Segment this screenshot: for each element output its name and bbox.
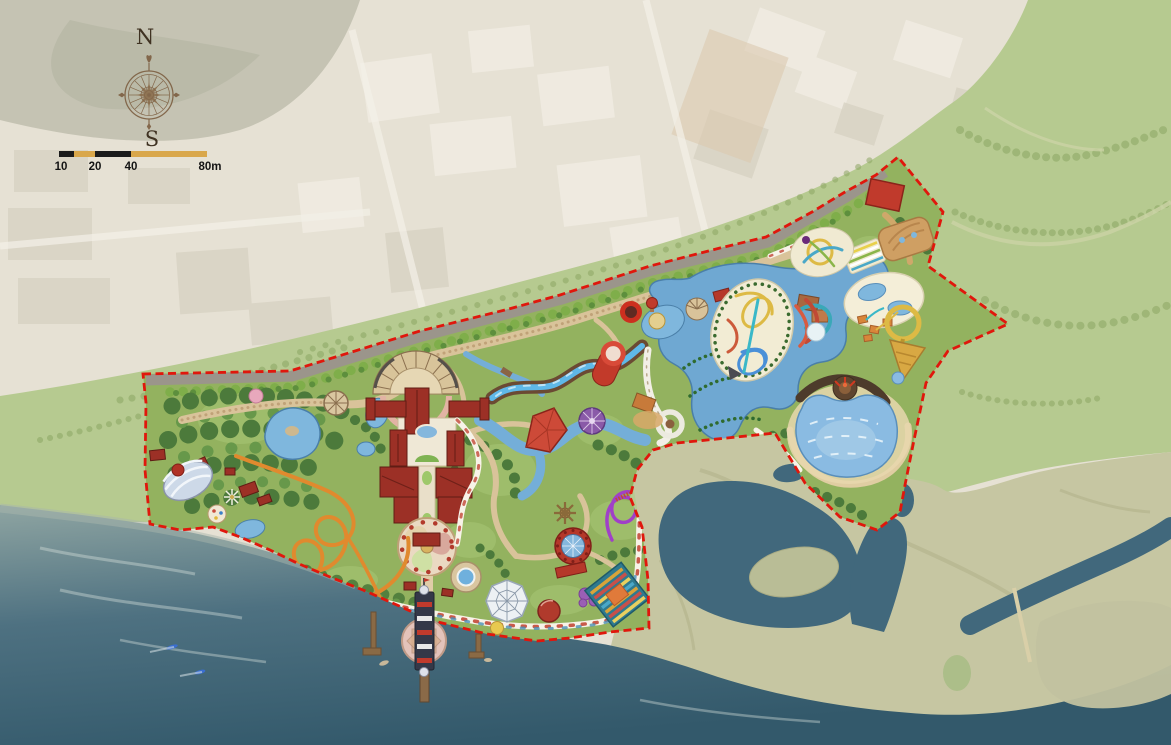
scale-segment-tan: [74, 151, 95, 157]
master-plan-map: N S 10 20 40 80m: [0, 0, 1171, 745]
octagon-pond-plaza: [451, 562, 481, 592]
scale-label-40: 40: [125, 161, 138, 173]
scale-label-80m: 80m: [198, 161, 221, 173]
spider-web-pavilion: [486, 580, 528, 622]
scale-segment-dark: [95, 151, 131, 157]
kiddie-carousel: [208, 505, 226, 523]
palm-starburst: [224, 489, 240, 505]
half-circle-plaza: [686, 298, 708, 320]
lake-island: [285, 426, 299, 436]
dome-cap: [172, 464, 184, 476]
pond: [357, 442, 375, 456]
small-dark-ride: [802, 236, 810, 244]
volcano-feature: [833, 376, 857, 400]
flat-peninsula: [1036, 601, 1171, 709]
carousel: [579, 408, 605, 434]
small-round-plaza: [649, 313, 665, 329]
marsh-lobe: [943, 655, 971, 691]
splash-pool: [807, 323, 825, 341]
compass-north-label: N: [136, 25, 154, 49]
compass-south-label: S: [145, 127, 159, 151]
courtyard-fountain: [416, 425, 438, 439]
stone-wheel-plaza: [324, 391, 348, 415]
amphitheater-dome: [555, 528, 591, 578]
flower-circle: [249, 389, 263, 403]
tea-cup-ride: [623, 304, 640, 321]
scale-label-10: 10: [55, 161, 68, 173]
sun-hedge-feature: [554, 502, 576, 524]
scale-label-20: 20: [89, 161, 102, 173]
yellow-round-ride: [491, 622, 504, 635]
sand-patch: [633, 411, 663, 429]
red-dome-theater: [538, 600, 560, 622]
site-master-plan: N S 10 20 40 80m: [0, 0, 1171, 745]
scale-segment-tan: [131, 151, 207, 157]
plaza-pavilion: [413, 533, 440, 546]
scale-segment-dark: [59, 151, 74, 157]
observation-tower-ride: [415, 578, 434, 677]
